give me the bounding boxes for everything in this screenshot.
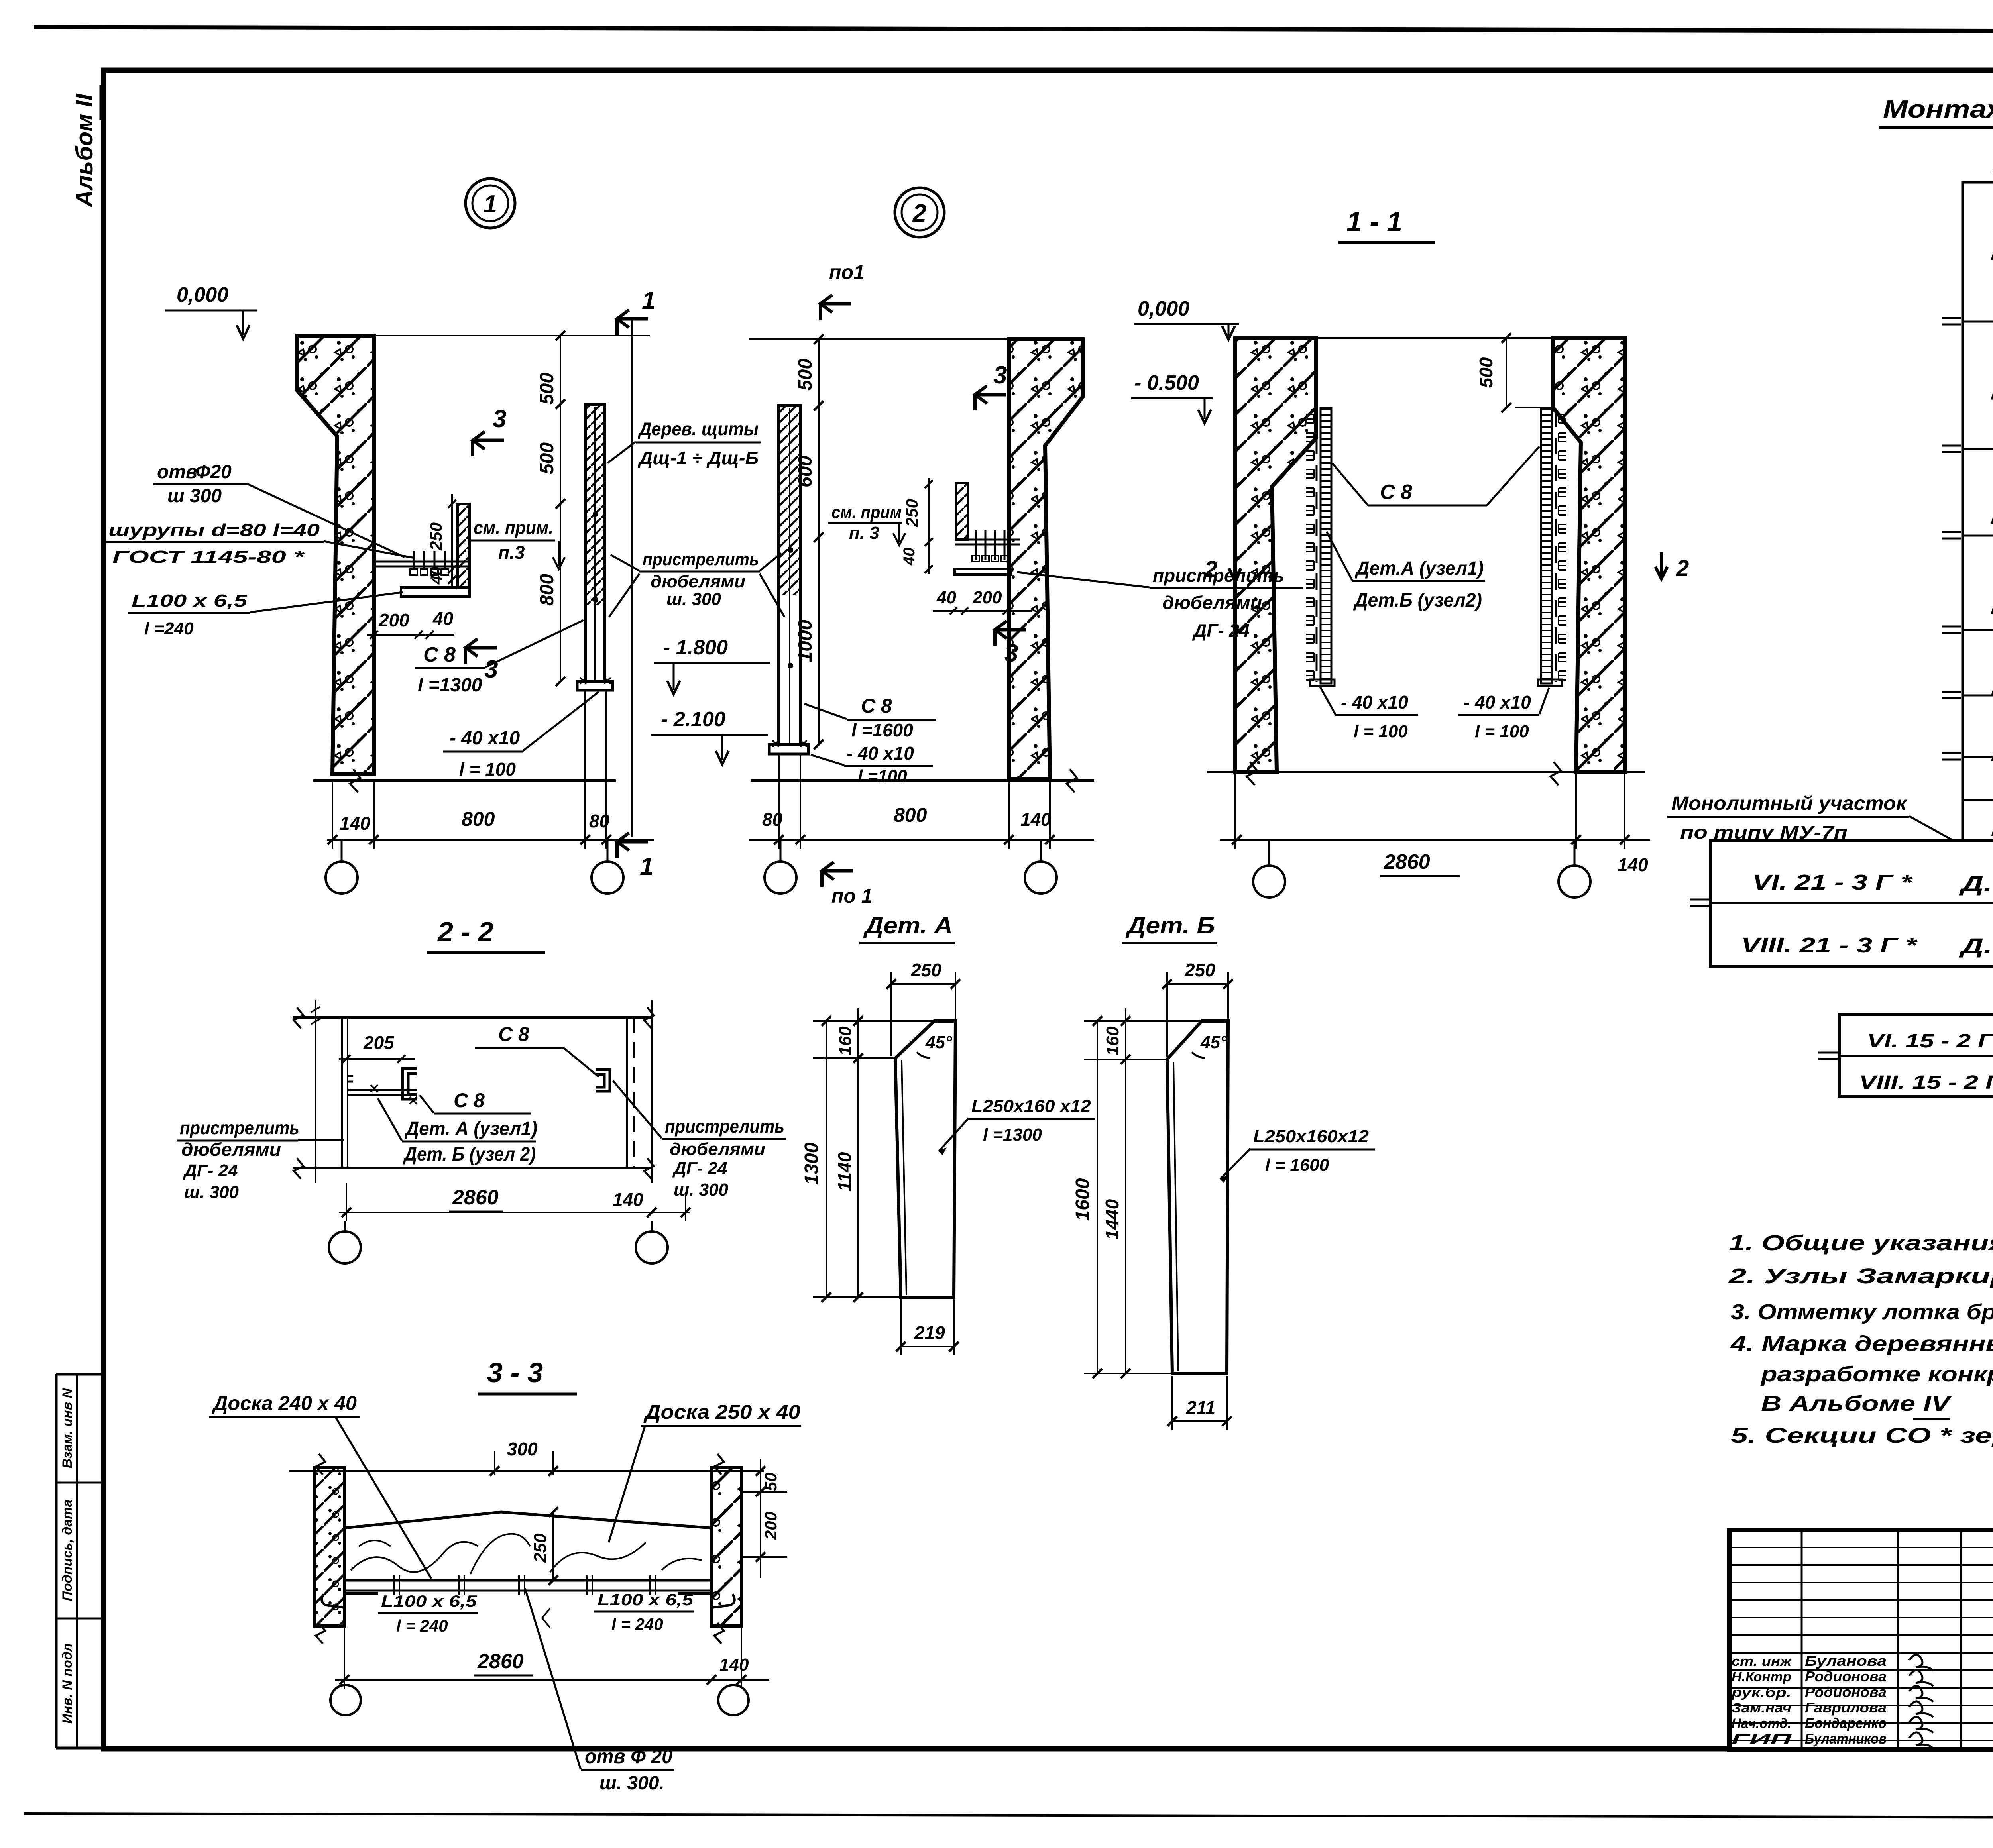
svg-text:2: 2: [1204, 556, 1217, 582]
svg-text:l =1300: l =1300: [983, 1125, 1042, 1145]
svg-text:В Альбоме IV: В Альбоме IV: [1761, 1392, 1952, 1416]
svg-text:1000: 1000: [795, 619, 816, 662]
svg-text:Монтажная схема конструкций: Монтажная схема конструкций: [1883, 96, 1993, 123]
svg-text:ш. 300: ш. 300: [184, 1182, 239, 1202]
svg-text:см. прим.: см. прим.: [474, 517, 553, 538]
svg-text:Инв. N подл: Инв. N подл: [60, 1643, 75, 1724]
svg-text:l = 240: l = 240: [396, 1616, 448, 1635]
svg-text:- 2.100: - 2.100: [661, 708, 725, 731]
svg-text:С 8: С 8: [861, 695, 892, 717]
svg-text:800: 800: [894, 804, 927, 826]
svg-text:L100 x 6,5: L100 x 6,5: [598, 1590, 694, 1609]
svg-text:205: 205: [363, 1032, 395, 1053]
svg-text:l = 100: l = 100: [1475, 722, 1529, 741]
svg-text:0,000: 0,000: [1138, 297, 1189, 320]
svg-text:1 - 1: 1 - 1: [1346, 206, 1402, 237]
svg-text:разработке конкретного проек: разработке конкретного проекта. Щиты раз…: [1760, 1362, 1993, 1386]
svg-text:Дерев. щиты: Дерев. щиты: [637, 418, 759, 439]
svg-text:ш 300: ш 300: [167, 485, 222, 507]
svg-text:Доска 240 x 40: Доска 240 x 40: [212, 1392, 357, 1414]
svg-text:Родионова: Родионова: [1805, 1668, 1887, 1685]
svg-text:0,000: 0,000: [177, 283, 228, 306]
svg-text:800: 800: [537, 574, 558, 606]
svg-text:500: 500: [1476, 357, 1496, 388]
svg-text:дюбелями: дюбелями: [651, 572, 745, 591]
svg-text:250: 250: [1184, 960, 1215, 980]
svg-text:ш. 300.: ш. 300.: [599, 1773, 664, 1794]
svg-text:219: 219: [914, 1322, 945, 1343]
svg-text:пристрелить: пристрелить: [643, 550, 759, 569]
svg-text:1: 1: [642, 287, 655, 314]
svg-text:С 8: С 8: [498, 1023, 529, 1045]
svg-text:- 40 x10: - 40 x10: [450, 728, 520, 749]
svg-text:дюбелями: дюбелями: [670, 1139, 765, 1159]
svg-text:шурупы d=80 l=40: шурупы d=80 l=40: [108, 520, 320, 540]
svg-text:250: 250: [902, 499, 921, 527]
svg-text:Дет. Б: Дет. Б: [1125, 913, 1215, 939]
svg-text:3. Отметку лотка брать по: 3. Отметку лотка брать по чертежам „ТВ" …: [1731, 1300, 1993, 1324]
svg-text:Ф20: Ф20: [195, 462, 232, 483]
svg-text:отв: отв: [157, 462, 197, 483]
svg-text:Д. 21 - 3: Д. 21 - 3: [1959, 934, 1993, 958]
svg-text:VIII. 15 - 2 Г *: VIII. 15 - 2 Г *: [1859, 1072, 1993, 1093]
svg-text:140: 140: [613, 1189, 643, 1210]
svg-text:L250x160 x12: L250x160 x12: [971, 1096, 1091, 1116]
svg-text:45°: 45°: [1200, 1033, 1227, 1052]
svg-text:l = 240: l = 240: [611, 1615, 663, 1634]
svg-text:Родионова: Родионова: [1805, 1684, 1887, 1700]
svg-text:п.3: п.3: [498, 542, 525, 563]
svg-text:2860: 2860: [452, 1186, 499, 1209]
svg-text:Дет. А: Дет. А: [863, 913, 953, 939]
svg-text:3: 3: [493, 405, 506, 433]
svg-text:l =100: l =100: [858, 766, 907, 786]
svg-text:ДГ- 24: ДГ- 24: [672, 1159, 727, 1178]
svg-text:Гаврилова: Гаврилова: [1805, 1699, 1887, 1716]
svg-text:600: 600: [795, 456, 816, 487]
svg-text:4. Марка деревянных щитов о: 4. Марка деревянных щитов определяется п…: [1730, 1332, 1993, 1356]
svg-text:ст. инж: ст. инж: [1732, 1654, 1792, 1669]
svg-text:500: 500: [537, 373, 558, 405]
svg-text:С 8: С 8: [1380, 481, 1412, 504]
svg-text:Н.Контр: Н.Контр: [1732, 1669, 1791, 1685]
svg-text:VIII. 21 - 3 Г *: VIII. 21 - 3 Г *: [1741, 933, 1918, 957]
svg-text:250: 250: [427, 522, 445, 551]
svg-text:2 - 2: 2 - 2: [437, 916, 493, 947]
svg-text:по 1: по 1: [831, 885, 873, 907]
svg-text:- 1.800: - 1.800: [663, 636, 728, 659]
svg-text:250: 250: [531, 1533, 550, 1563]
svg-text:по1: по1: [829, 261, 865, 283]
svg-text:VI. 15 - 2 Г *: VI. 15 - 2 Г *: [1867, 1031, 1993, 1052]
svg-text:40: 40: [900, 548, 918, 566]
svg-text:Нач.отд.: Нач.отд.: [1732, 1716, 1791, 1731]
svg-text:отв Ф 20: отв Ф 20: [585, 1745, 672, 1767]
svg-text:ГИП: ГИП: [1732, 1732, 1793, 1747]
svg-text:пристрелить: пристрелить: [665, 1116, 784, 1137]
svg-text:l =1600: l =1600: [851, 720, 913, 740]
svg-text:80: 80: [762, 809, 783, 830]
svg-text:ДГ- 24: ДГ- 24: [183, 1161, 238, 1180]
svg-text:Монолитный участок: Монолитный участок: [1671, 793, 1908, 814]
svg-text:140: 140: [719, 1655, 749, 1675]
svg-text:1140: 1140: [834, 1152, 855, 1191]
svg-text:500: 500: [537, 442, 558, 474]
svg-text:3: 3: [484, 656, 498, 683]
svg-text:1: 1: [484, 190, 497, 218]
svg-text:L250x160x12: L250x160x12: [1253, 1127, 1369, 1146]
svg-text:пристрелить: пристрелить: [180, 1117, 299, 1138]
svg-text:ш. 300: ш. 300: [666, 589, 721, 609]
svg-text:L100 x 6,5: L100 x 6,5: [381, 1592, 477, 1610]
svg-text:Д. 21 - 3: Д. 21 - 3: [1959, 872, 1993, 896]
svg-text:40: 40: [432, 608, 454, 629]
svg-text:200: 200: [972, 588, 1002, 607]
svg-text:140: 140: [340, 813, 370, 834]
svg-text:п. 3: п. 3: [849, 523, 879, 543]
svg-text:3: 3: [993, 361, 1007, 389]
svg-text:2: 2: [1676, 556, 1689, 581]
svg-text:1600: 1600: [1072, 1178, 1093, 1221]
svg-text:200: 200: [378, 610, 409, 630]
svg-text:l = 100: l = 100: [1354, 722, 1408, 741]
svg-text:Зам.нач: Зам.нач: [1732, 1701, 1791, 1716]
svg-text:Дщ-1 ÷ Дщ-Б: Дщ-1 ÷ Дщ-Б: [637, 448, 759, 468]
svg-text:40: 40: [936, 588, 956, 607]
svg-text:Подпись, дата: Подпись, дата: [60, 1500, 75, 1601]
svg-text:2860: 2860: [1384, 850, 1430, 874]
svg-text:Бондаренко: Бондаренко: [1805, 1715, 1887, 1731]
svg-text:- 0.500: - 0.500: [1134, 371, 1199, 395]
svg-text:С 8: С 8: [423, 643, 456, 666]
svg-text:140: 140: [1020, 809, 1051, 830]
svg-text:Булатников: Булатников: [1805, 1730, 1887, 1747]
svg-text:Буланова: Буланова: [1805, 1653, 1887, 1669]
svg-text:500: 500: [795, 359, 816, 391]
svg-text:2: 2: [912, 200, 926, 227]
svg-text:l = 100: l = 100: [459, 759, 516, 780]
svg-text:45°: 45°: [925, 1033, 952, 1052]
svg-text:см. прим: см. прим: [831, 503, 902, 522]
svg-text:Дет.А (узел1): Дет.А (узел1): [1354, 558, 1484, 579]
svg-text:Дет. Б (узел 2): Дет. Б (узел 2): [403, 1144, 536, 1165]
svg-text:1440: 1440: [1102, 1199, 1122, 1240]
svg-text:1: 1: [640, 853, 653, 880]
svg-text:5. Секции СО * зеркальны о: 5. Секции СО * зеркальны основным.: [1731, 1424, 1993, 1447]
svg-text:Дет.Б (узел2): Дет.Б (узел2): [1353, 590, 1482, 611]
svg-text:1. Общие указания см. лист: 1. Общие указания см. лист 2: [1729, 1231, 1993, 1255]
svg-text:ш. 300: ш. 300: [674, 1180, 729, 1200]
svg-text:дюбелями: дюбелями: [181, 1139, 281, 1160]
svg-text:L100 x 6,5: L100 x 6,5: [132, 591, 248, 611]
svg-text:40: 40: [428, 567, 445, 585]
svg-text:140: 140: [1618, 854, 1648, 875]
svg-text:- 40 x10: - 40 x10: [1464, 692, 1531, 713]
svg-text:- 40 x10: - 40 x10: [847, 743, 914, 764]
svg-text:l =1300: l =1300: [418, 675, 482, 696]
svg-text:Доска 250 x 40: Доска 250 x 40: [643, 1401, 801, 1423]
svg-text:2860: 2860: [477, 1650, 524, 1673]
svg-text:2. Узлы Замаркированы на ли: 2. Узлы Замаркированы на листе 47: [1728, 1264, 1993, 1288]
svg-text:800: 800: [462, 808, 495, 830]
svg-text:l = 1600: l = 1600: [1265, 1155, 1329, 1175]
svg-text:80: 80: [589, 811, 610, 831]
svg-text:160: 160: [835, 1026, 855, 1056]
svg-text:3: 3: [1004, 640, 1018, 667]
svg-text:3 - 3: 3 - 3: [487, 1357, 543, 1388]
svg-text:250: 250: [910, 960, 941, 980]
svg-text:рук.бр.: рук.бр.: [1731, 1685, 1791, 1700]
svg-text:VI. 21 - 3 Г *: VI. 21 - 3 Г *: [1752, 870, 1913, 894]
svg-text:Дет. А (узел1): Дет. А (узел1): [404, 1118, 537, 1139]
svg-text:- 40 x10: - 40 x10: [1341, 692, 1408, 713]
svg-text:Взам. инв N: Взам. инв N: [60, 1388, 75, 1468]
svg-text:l =240: l =240: [144, 619, 194, 638]
svg-text:1300: 1300: [801, 1142, 822, 1185]
svg-text:ГОСТ 1145-80 *: ГОСТ 1145-80 *: [112, 547, 305, 567]
svg-text:300: 300: [507, 1439, 538, 1459]
svg-text:С 8: С 8: [454, 1089, 485, 1112]
svg-text:160: 160: [1103, 1026, 1122, 1056]
svg-text:50: 50: [761, 1473, 780, 1491]
svg-text:200: 200: [761, 1512, 780, 1540]
svg-text:Альбом II: Альбом II: [71, 93, 98, 208]
svg-text:211: 211: [1186, 1397, 1215, 1418]
